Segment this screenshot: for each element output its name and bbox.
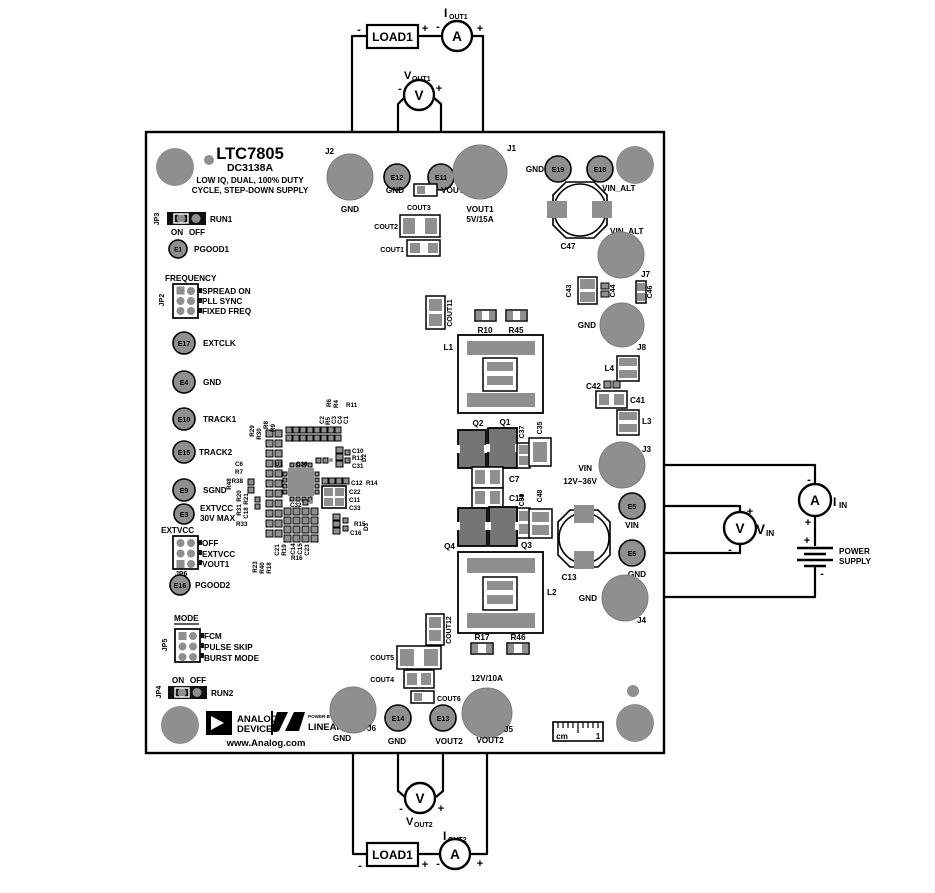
jp3-off: OFF bbox=[189, 228, 205, 237]
jp6-header: EXTVCC bbox=[161, 526, 194, 535]
r45-label: R45 bbox=[508, 326, 523, 335]
component-cout11: COUT11 bbox=[426, 296, 454, 329]
turret-e3: E3 EXTVCC 30V MAX bbox=[174, 504, 236, 524]
c12-label: C12 bbox=[351, 480, 363, 487]
vout2-plus: + bbox=[438, 803, 444, 815]
component-l2: L2 bbox=[458, 552, 557, 633]
iout1-minus: - bbox=[436, 21, 440, 33]
iout1-ammeter: I OUT1 - A + bbox=[436, 6, 483, 51]
e5-id: E5 bbox=[628, 504, 637, 511]
supply-minus: - bbox=[820, 568, 824, 580]
r16-label: R16 bbox=[291, 555, 303, 562]
jp4-id: JP4 bbox=[156, 686, 163, 699]
c37-label: C37 bbox=[519, 425, 526, 438]
cout2-label: COUT2 bbox=[374, 224, 398, 231]
mounting-hole bbox=[616, 704, 654, 742]
c7-label: C7 bbox=[509, 475, 520, 484]
j5-rating: 12V/10A bbox=[471, 674, 503, 683]
c42-label: C42 bbox=[586, 382, 601, 391]
r17-label: R17 bbox=[474, 633, 489, 642]
q2-label: Q2 bbox=[473, 419, 484, 428]
c46-label: C46 bbox=[647, 285, 654, 298]
c47-label: C47 bbox=[560, 242, 575, 251]
c10-label: C10 bbox=[352, 448, 364, 455]
load1-text: LOAD1 bbox=[372, 30, 413, 44]
d3-label: D3 bbox=[363, 522, 370, 531]
r31-label: R31 bbox=[236, 504, 243, 516]
jp4-on: ON bbox=[172, 676, 184, 685]
r21-label: R21 bbox=[243, 493, 250, 505]
jp5-opt1: FCM bbox=[204, 632, 222, 641]
jp2-opt2: PLL SYNC bbox=[202, 297, 242, 306]
j8-label: GND bbox=[578, 321, 596, 330]
c30-label: C30 bbox=[296, 461, 308, 468]
jp5-opt2: PULSE SKIP bbox=[204, 643, 253, 652]
r14-label: R14 bbox=[366, 480, 378, 487]
vout1-minus: - bbox=[398, 83, 402, 95]
j3-rating: 12V–36V bbox=[563, 477, 597, 486]
jp5-header: MODE bbox=[174, 614, 199, 623]
c1-label: C1 bbox=[343, 415, 350, 424]
iin-letter: A bbox=[810, 493, 820, 508]
e11-id: E11 bbox=[435, 175, 447, 182]
j1-label: VOUT1 bbox=[466, 205, 494, 214]
r33-label: R33 bbox=[236, 521, 248, 528]
vin-letter: V bbox=[735, 521, 744, 536]
jp2-opt1: SPREAD ON bbox=[202, 287, 251, 296]
power-by-text: POWER BY bbox=[308, 714, 333, 719]
j3-id: J3 bbox=[642, 445, 652, 454]
c6-label: C6 bbox=[235, 461, 244, 468]
vout2-voltmeter: - V + V OUT2 bbox=[399, 783, 444, 829]
j4-id: J4 bbox=[637, 616, 647, 625]
r19-label: R19 bbox=[281, 544, 288, 556]
r8-label: R8 bbox=[263, 420, 270, 429]
iin-sym: I bbox=[833, 495, 836, 509]
jp5-opt3: BURST MODE bbox=[204, 654, 260, 663]
load2-block: - LOAD1 + bbox=[358, 843, 428, 872]
e3-label2: 30V MAX bbox=[200, 514, 236, 523]
e19-label: GND bbox=[526, 165, 544, 174]
vin-sub: IN bbox=[766, 529, 774, 538]
cout3-label: COUT3 bbox=[407, 205, 431, 212]
jp5-id: JP5 bbox=[162, 639, 169, 652]
e13-label: VOUT2 bbox=[435, 737, 463, 746]
q4-label: Q4 bbox=[444, 542, 455, 551]
c18-label: C18 bbox=[243, 507, 250, 519]
e3-id: E3 bbox=[180, 512, 189, 519]
e10-id: E10 bbox=[178, 417, 191, 424]
vout2-sym: V bbox=[406, 816, 414, 828]
component-c10-r13-c31: C10 R13 C31 D2 bbox=[336, 447, 368, 470]
iout2-plus: + bbox=[477, 858, 483, 870]
cout6-label: COUT6 bbox=[437, 696, 461, 703]
l1-label: L1 bbox=[443, 343, 453, 352]
r7-label: R7 bbox=[235, 469, 244, 476]
supply-line1: POWER bbox=[839, 547, 870, 556]
e10-label: TRACK1 bbox=[203, 415, 237, 424]
e3-label: EXTVCC bbox=[200, 504, 233, 513]
jp6-opt3: VOUT1 bbox=[202, 560, 230, 569]
c44-label: C44 bbox=[610, 284, 617, 297]
board-desc-2: CYCLE, STEP-DOWN SUPPLY bbox=[192, 186, 309, 195]
j6-id: J6 bbox=[367, 724, 377, 733]
r4-label: R4 bbox=[333, 399, 340, 408]
vin-sym: V bbox=[756, 522, 765, 537]
e15-label: TRACK2 bbox=[199, 448, 233, 457]
jp3-on: ON bbox=[171, 228, 183, 237]
c48-label: C48 bbox=[537, 489, 544, 502]
jp6-opt2: EXTVCC bbox=[202, 550, 235, 559]
jp3-id: JP3 bbox=[154, 213, 161, 226]
jp4-label: RUN2 bbox=[211, 689, 234, 698]
ruler-mark-1: 1 bbox=[596, 732, 601, 741]
c21-label: C21 bbox=[274, 544, 281, 556]
r46-label: R46 bbox=[510, 633, 525, 642]
cout5-label: COUT5 bbox=[370, 655, 394, 662]
r29-label: R29 bbox=[249, 425, 256, 437]
e4-id: E4 bbox=[180, 380, 189, 387]
wire-supply-to-j4 bbox=[648, 566, 815, 597]
c31-label: C31 bbox=[352, 463, 364, 470]
l4-label: L4 bbox=[604, 364, 614, 373]
power-supply: + - POWER SUPPLY bbox=[797, 535, 872, 580]
j1-id: J1 bbox=[507, 144, 517, 153]
mounting-hole bbox=[161, 706, 199, 744]
fiducial-dot bbox=[204, 155, 214, 165]
vin-voltmeter: + V - V IN bbox=[724, 506, 774, 556]
e14-label: GND bbox=[388, 737, 406, 746]
jp6-opt1: OFF bbox=[202, 539, 218, 548]
r23-label: R23 bbox=[252, 561, 259, 573]
r18-label: R18 bbox=[266, 562, 273, 574]
c13-label: C13 bbox=[561, 573, 576, 582]
j6-label: GND bbox=[333, 734, 351, 743]
c39-label: C39 bbox=[519, 493, 526, 506]
vout2-letter: V bbox=[415, 791, 424, 806]
j7-id: J7 bbox=[641, 270, 651, 279]
e18-label: VIN_ALT bbox=[602, 184, 636, 193]
vout2-sub: OUT2 bbox=[414, 822, 433, 829]
demo-board-test-setup-diagram: LTC7805 DC3138A LOW IQ, DUAL, 100% DUTY … bbox=[0, 0, 935, 888]
l3-label: L3 bbox=[642, 417, 652, 426]
u1-label: U1 bbox=[275, 461, 284, 468]
l2-label: L2 bbox=[547, 588, 557, 597]
mounting-hole bbox=[616, 146, 654, 184]
board-desc-1: LOW IQ, DUAL, 100% DUTY bbox=[196, 176, 304, 185]
vout2-minus: - bbox=[399, 803, 403, 815]
r11-label: R11 bbox=[346, 402, 358, 409]
j2-label: GND bbox=[341, 205, 359, 214]
board-part-number: LTC7805 bbox=[216, 145, 284, 163]
c35-label: C35 bbox=[537, 421, 544, 434]
vout1-letter: V bbox=[414, 88, 423, 103]
load1-block: - LOAD1 + bbox=[357, 23, 428, 48]
ruler: cm 1 bbox=[553, 722, 603, 741]
e18-id: E18 bbox=[594, 167, 607, 174]
load2-text: LOAD1 bbox=[372, 848, 413, 862]
iout1-sym: I bbox=[444, 6, 447, 20]
r48-label: R48 bbox=[226, 478, 233, 490]
website-text: www.Analog.com bbox=[226, 738, 306, 749]
e14-id: E14 bbox=[392, 716, 405, 723]
component-cout12: COUT12 bbox=[426, 614, 453, 645]
jp4-off: OFF bbox=[190, 676, 206, 685]
supply-plus: + bbox=[804, 535, 810, 547]
iout1-letter: A bbox=[452, 29, 462, 44]
j3-label: VIN bbox=[578, 464, 592, 473]
e6-id: E6 bbox=[628, 551, 637, 558]
jp3-label: RUN1 bbox=[210, 215, 233, 224]
battery-icon bbox=[797, 548, 833, 566]
e15-id: E15 bbox=[178, 450, 191, 457]
jp2-id: JP2 bbox=[159, 294, 166, 307]
c16-label: C16 bbox=[350, 530, 362, 537]
j1-rating: 5V/15A bbox=[466, 215, 493, 224]
e4-label: GND bbox=[203, 378, 221, 387]
q1-label: Q1 bbox=[500, 418, 511, 427]
iout2-letter: A bbox=[450, 847, 460, 862]
e1-label: PGOOD1 bbox=[194, 245, 229, 254]
c15-label: C15 bbox=[297, 543, 304, 555]
c33-label: C33 bbox=[349, 505, 361, 512]
e16-label: PGOOD2 bbox=[195, 581, 230, 590]
j4-label: GND bbox=[579, 594, 597, 603]
wire-j3-to-iin bbox=[645, 465, 815, 485]
e1-id: E1 bbox=[174, 247, 182, 254]
c11-label: C11 bbox=[349, 497, 361, 504]
e5-label: VIN bbox=[625, 521, 639, 530]
j8-id: J8 bbox=[637, 343, 647, 352]
mounting-hole bbox=[156, 148, 194, 186]
c23-label: C23 bbox=[304, 544, 311, 556]
component-c22-c11: C22 C11 C33 bbox=[322, 486, 361, 512]
c22-label: C22 bbox=[349, 489, 361, 496]
iout2-minus: - bbox=[436, 858, 440, 870]
vout1-voltmeter: V OUT1 - V + bbox=[398, 70, 442, 110]
fiducial-dot bbox=[627, 685, 639, 697]
vin-minus: - bbox=[728, 544, 732, 556]
vout1-sym: V bbox=[404, 70, 412, 82]
e12-id: E12 bbox=[391, 175, 404, 182]
j2-id: J2 bbox=[325, 147, 335, 156]
r6-label: R6 bbox=[326, 398, 333, 407]
load2-minus: - bbox=[358, 860, 362, 872]
load2-plus: + bbox=[422, 859, 428, 871]
ruler-unit: cm bbox=[556, 732, 568, 741]
c41-label: C41 bbox=[630, 396, 645, 405]
c43-label: C43 bbox=[566, 284, 573, 297]
load1-minus: - bbox=[357, 24, 361, 36]
r10-label: R10 bbox=[477, 326, 492, 335]
d2-label: D2 bbox=[361, 453, 368, 462]
e9-label: SGND bbox=[203, 486, 227, 495]
load1-plus: + bbox=[422, 23, 428, 35]
e17-label: EXTCLK bbox=[203, 339, 236, 348]
jp2-header: FREQUENCY bbox=[165, 274, 217, 283]
r20-label: R20 bbox=[236, 490, 243, 502]
board-demo-number: DC3138A bbox=[227, 162, 274, 174]
j5-label: VOUT2 bbox=[476, 736, 504, 745]
r30-label: R30 bbox=[256, 428, 263, 440]
supply-line2: SUPPLY bbox=[839, 557, 872, 566]
r38-label: R38 bbox=[231, 478, 243, 485]
iout2-ammeter: I OUT2 - A + bbox=[436, 829, 483, 870]
iin-plus: + bbox=[805, 517, 811, 529]
r9-label: R9 bbox=[270, 423, 277, 432]
j5-id: J5 bbox=[504, 725, 514, 734]
r40-label: R40 bbox=[259, 562, 266, 574]
e12-label: GND bbox=[386, 186, 404, 195]
c14-label: C14 bbox=[290, 543, 297, 555]
jp2-opt3: FIXED FREQ bbox=[202, 307, 252, 316]
e16-id: E16 bbox=[174, 583, 187, 590]
e13-id: E13 bbox=[437, 716, 450, 723]
component-l1: L1 bbox=[443, 335, 543, 413]
iout1-plus: + bbox=[477, 23, 483, 35]
q3-label: Q3 bbox=[521, 541, 532, 550]
e9-id: E9 bbox=[180, 488, 189, 495]
cout4-label: COUT4 bbox=[370, 677, 394, 684]
cout11-label: COUT11 bbox=[447, 299, 454, 326]
e17-id: E17 bbox=[178, 341, 191, 348]
cout1-label: COUT1 bbox=[380, 247, 404, 254]
vout1-plus: + bbox=[436, 83, 442, 95]
cout12-label: COUT12 bbox=[446, 616, 453, 644]
e19-id: E19 bbox=[552, 167, 565, 174]
iin-sub: IN bbox=[839, 501, 847, 510]
iin-ammeter: - A + I IN bbox=[799, 474, 847, 529]
